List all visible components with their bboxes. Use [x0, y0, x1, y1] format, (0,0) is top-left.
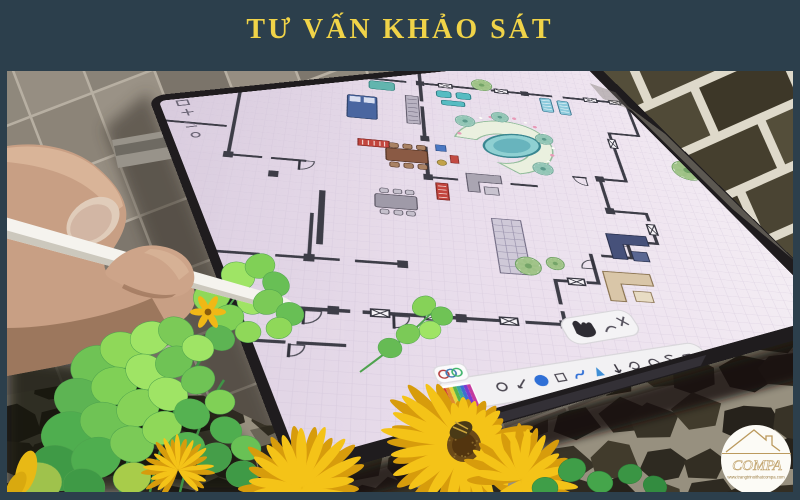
svg-text:COMPA: COMPA	[732, 458, 783, 474]
svg-text:www.trangtrinoithatcompa.com: www.trangtrinoithatcompa.com	[727, 475, 785, 480]
